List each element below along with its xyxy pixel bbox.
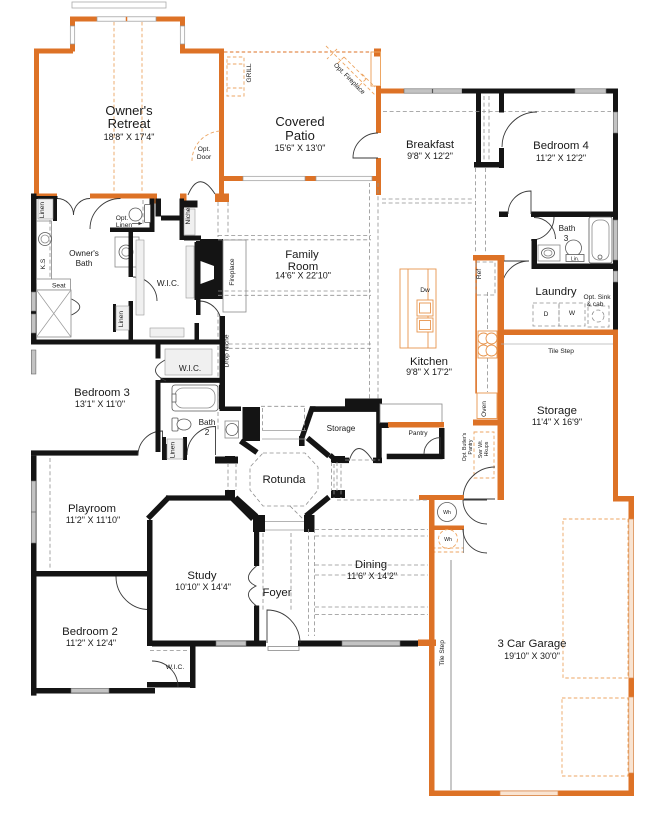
svg-text:19'10" X 30'0": 19'10" X 30'0" xyxy=(504,651,560,661)
svg-text:Bath: Bath xyxy=(199,418,216,427)
svg-text:18'8" X 17'4": 18'8" X 17'4" xyxy=(104,132,155,142)
svg-text:Oven: Oven xyxy=(481,401,488,417)
svg-text:9'8" X 17'2": 9'8" X 17'2" xyxy=(406,367,452,377)
svg-text:Owner's: Owner's xyxy=(69,249,99,258)
svg-text:Pantry: Pantry xyxy=(468,439,474,454)
svg-text:Bath: Bath xyxy=(559,224,576,233)
svg-text:3: 3 xyxy=(564,234,569,243)
svg-text:D: D xyxy=(544,311,549,318)
svg-text:Niche: Niche xyxy=(185,207,192,224)
svg-text:Dw: Dw xyxy=(420,287,430,294)
svg-text:Linen: Linen xyxy=(116,222,132,229)
svg-text:Linen: Linen xyxy=(170,442,177,458)
svg-text:Family: Family xyxy=(285,249,319,261)
svg-text:Drop Niche: Drop Niche xyxy=(224,334,231,367)
svg-text:11'4" X 16'9": 11'4" X 16'9" xyxy=(532,417,582,427)
svg-text:Pantry: Pantry xyxy=(408,430,428,437)
svg-text:Retreat: Retreat xyxy=(108,116,151,131)
svg-text:Bedroom 2: Bedroom 2 xyxy=(62,626,118,638)
svg-text:Opt.: Opt. xyxy=(198,146,211,153)
svg-text:Linen: Linen xyxy=(39,202,46,218)
svg-text:Opt. Sink: Opt. Sink xyxy=(583,294,611,301)
svg-text:Fireplace: Fireplace xyxy=(229,258,236,285)
svg-text:Wh: Wh xyxy=(444,537,452,543)
svg-text:Breakfast: Breakfast xyxy=(406,139,455,151)
svg-text:13'1" X 11'0": 13'1" X 11'0" xyxy=(75,399,125,409)
svg-text:K.S: K.S xyxy=(40,258,47,269)
svg-text:Storage: Storage xyxy=(537,405,577,417)
svg-text:9'8" X 12'2": 9'8" X 12'2" xyxy=(407,151,453,161)
svg-text:Foyer: Foyer xyxy=(262,587,291,599)
svg-text:Seat: Seat xyxy=(52,283,66,290)
svg-text:2: 2 xyxy=(205,428,210,437)
svg-text:Wh: Wh xyxy=(443,510,451,516)
svg-text:11'6" X 14'2": 11'6" X 14'2" xyxy=(347,571,397,581)
svg-text:Patio: Patio xyxy=(285,128,315,143)
svg-text:Playroom: Playroom xyxy=(68,503,116,515)
svg-text:Laundry: Laundry xyxy=(535,286,576,298)
svg-text:11'2" X 11'10": 11'2" X 11'10" xyxy=(66,515,121,525)
svg-text:Opt.: Opt. xyxy=(116,215,129,222)
svg-text:Dining: Dining xyxy=(355,559,387,571)
svg-text:W.I.C.: W.I.C. xyxy=(166,664,185,671)
svg-text:W.I.C.: W.I.C. xyxy=(157,279,179,288)
svg-text:Rotunda: Rotunda xyxy=(262,474,306,486)
svg-text:3 Car Garage: 3 Car Garage xyxy=(497,638,566,650)
svg-text:Covered: Covered xyxy=(275,114,324,129)
svg-text:Bedroom 4: Bedroom 4 xyxy=(533,140,589,152)
svg-text:11'2" X 12'4": 11'2" X 12'4" xyxy=(66,638,116,648)
svg-text:Linen: Linen xyxy=(118,311,125,327)
svg-text:15'6" X 13'0": 15'6" X 13'0" xyxy=(275,143,326,153)
svg-text:& cab: & cab xyxy=(587,301,604,308)
svg-text:10'10" X 14'4": 10'10" X 14'4" xyxy=(175,582,231,592)
svg-text:14'6" X 22'10": 14'6" X 22'10" xyxy=(275,271,331,281)
svg-text:Tile Step: Tile Step xyxy=(439,640,446,666)
svg-text:Ref: Ref xyxy=(476,269,483,279)
svg-text:W: W xyxy=(569,310,576,317)
svg-text:Hkups: Hkups xyxy=(484,441,490,456)
svg-text:Storage: Storage xyxy=(327,424,356,433)
svg-text:Tile Step: Tile Step xyxy=(548,348,574,355)
svg-text:Lin.: Lin. xyxy=(571,257,579,263)
svg-text:11'2" X 12'2": 11'2" X 12'2" xyxy=(536,153,586,163)
svg-text:Bedroom 3: Bedroom 3 xyxy=(74,387,130,399)
svg-text:Door: Door xyxy=(197,154,212,161)
svg-text:GRILL: GRILL xyxy=(246,63,253,82)
svg-text:Study: Study xyxy=(187,570,216,582)
svg-text:Bath: Bath xyxy=(76,259,93,268)
svg-text:W.I.C.: W.I.C. xyxy=(179,364,201,373)
